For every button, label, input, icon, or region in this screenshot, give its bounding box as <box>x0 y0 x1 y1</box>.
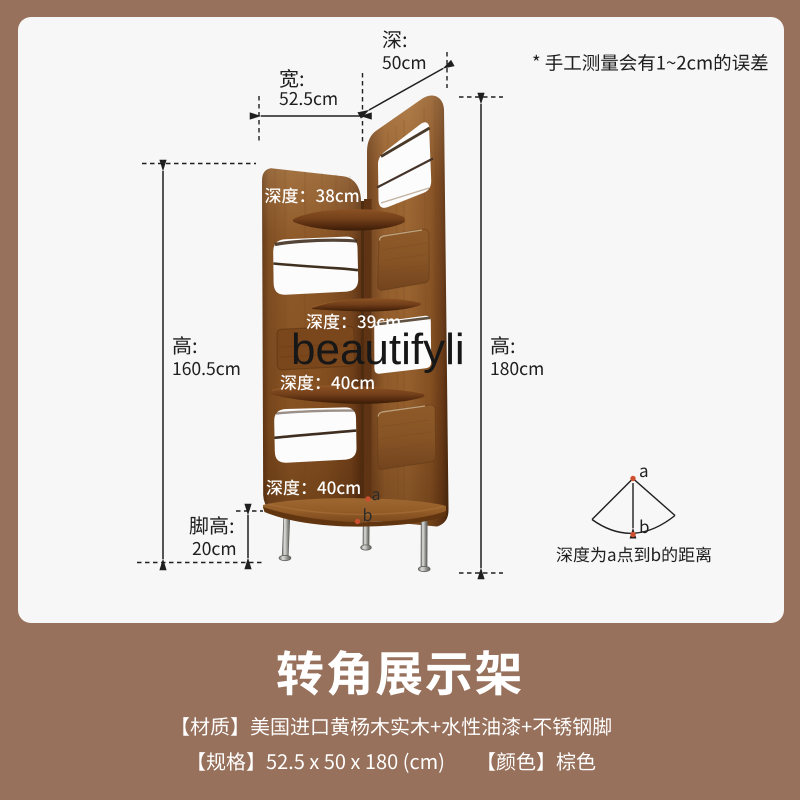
svg-text:beautifyli: beautifyli <box>291 325 465 374</box>
